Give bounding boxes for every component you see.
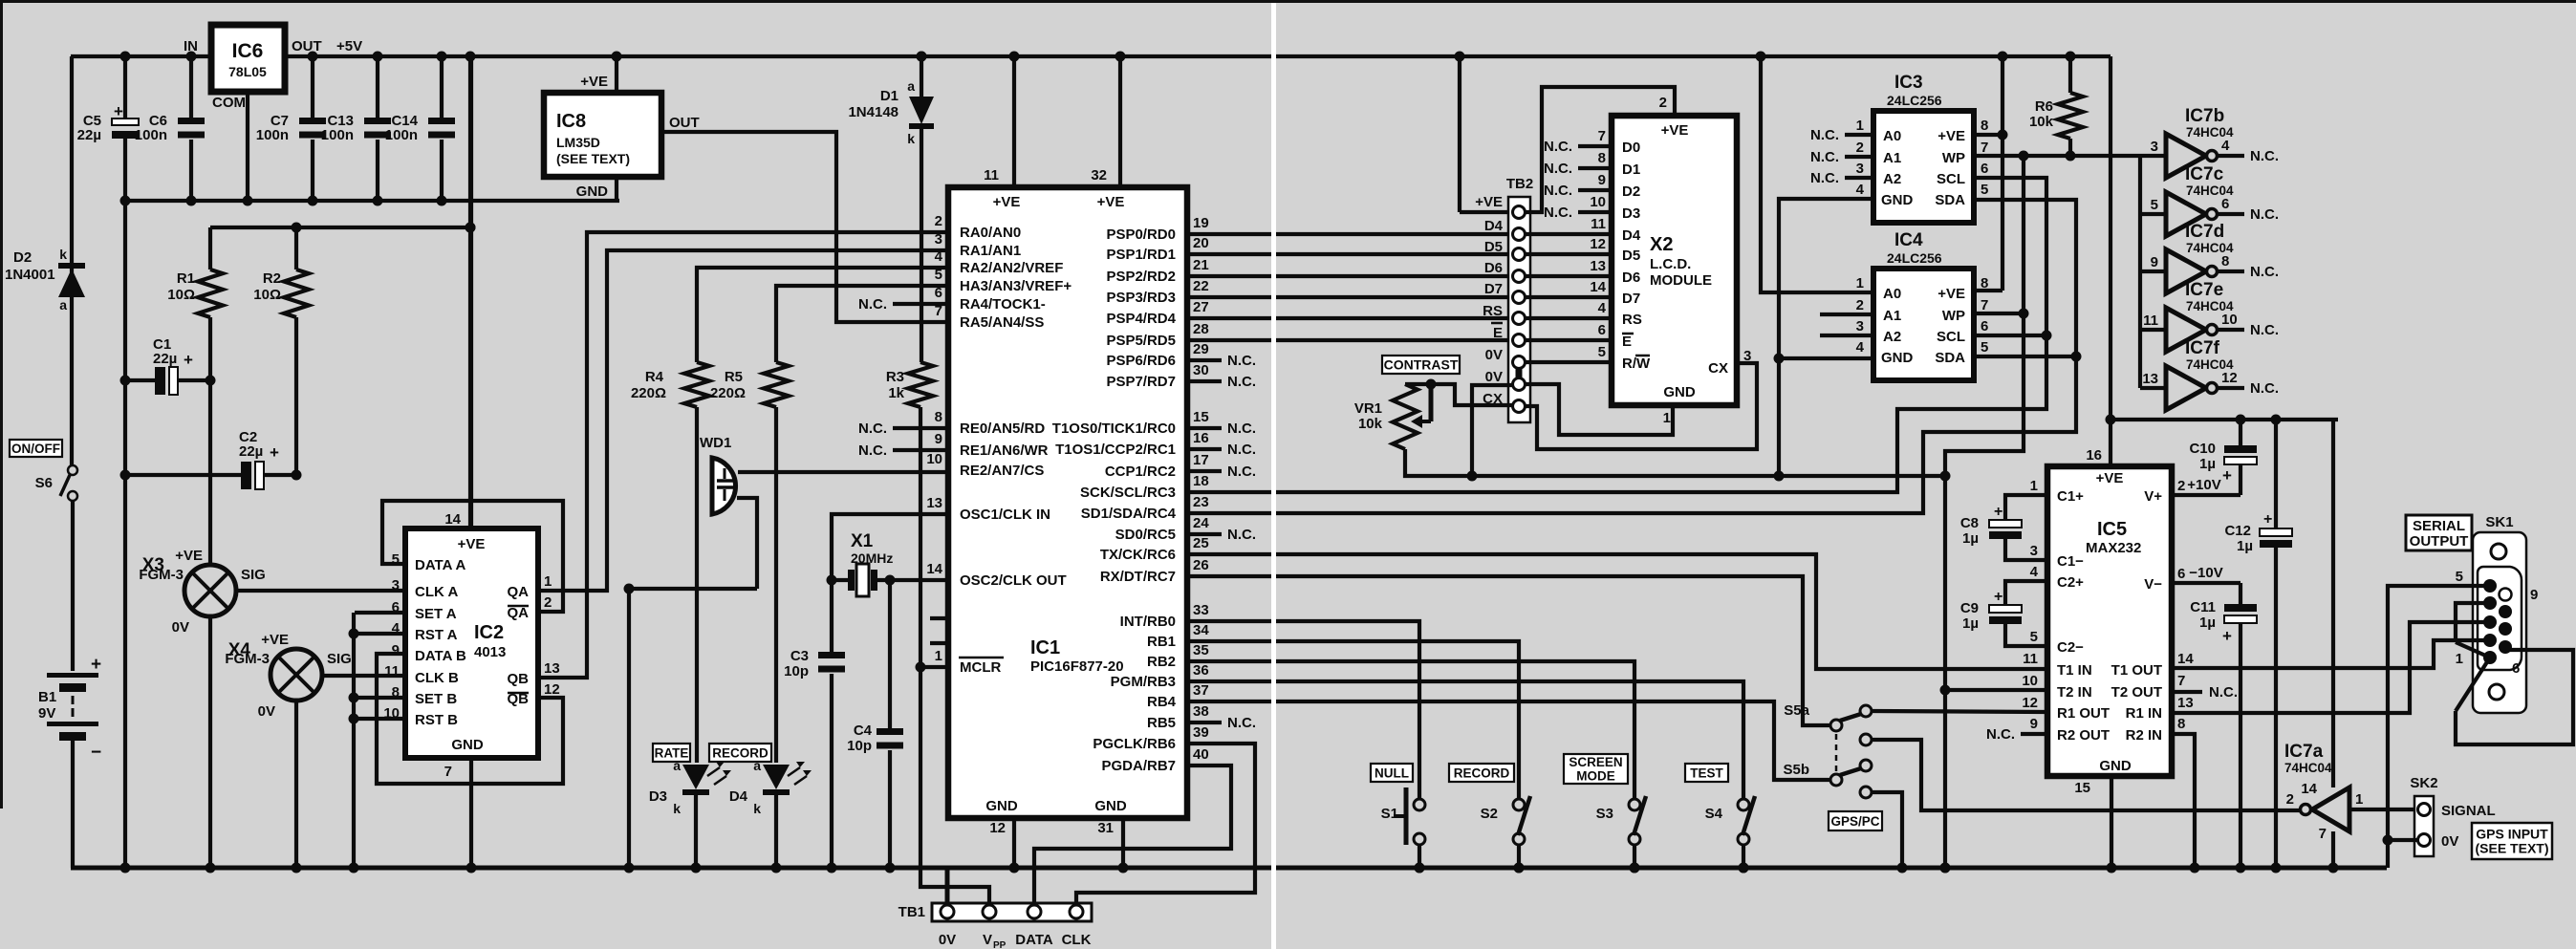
svg-text:C4: C4	[854, 723, 873, 739]
svg-text:100n: 100n	[256, 127, 289, 143]
svg-text:1k: 1k	[888, 385, 904, 401]
svg-text:INT/RB0: INT/RB0	[1120, 614, 1176, 630]
svg-text:6: 6	[2512, 660, 2520, 677]
svg-text:+VE: +VE	[993, 194, 1021, 210]
svg-text:39: 39	[1193, 724, 1209, 741]
svg-text:5: 5	[1598, 344, 1606, 360]
svg-text:20: 20	[1193, 235, 1209, 251]
svg-text:+: +	[184, 351, 193, 369]
svg-text:40: 40	[1193, 746, 1209, 763]
svg-text:RX/DT/RC7: RX/DT/RC7	[1100, 569, 1176, 585]
svg-text:IC1: IC1	[1030, 637, 1060, 658]
svg-text:A1: A1	[1883, 150, 1901, 166]
svg-text:27: 27	[1193, 299, 1209, 315]
svg-text:SD0/RC5: SD0/RC5	[1115, 527, 1176, 543]
svg-text:1µ: 1µ	[2199, 456, 2216, 472]
svg-text:IC7e: IC7e	[2185, 280, 2223, 300]
svg-text:RA1/AN1: RA1/AN1	[960, 243, 1021, 259]
svg-text:N.C.: N.C.	[1810, 149, 1839, 165]
svg-text:1µ: 1µ	[1962, 530, 1979, 547]
svg-text:A0: A0	[1883, 128, 1901, 144]
svg-text:C12: C12	[2224, 523, 2251, 539]
svg-text:N.C.: N.C.	[1544, 139, 1572, 155]
svg-text:D5: D5	[1484, 239, 1503, 255]
svg-text:2: 2	[1856, 140, 1864, 156]
svg-text:A0: A0	[1883, 286, 1901, 302]
svg-text:GND: GND	[2099, 758, 2132, 774]
svg-text:N.C.: N.C.	[2250, 206, 2279, 223]
svg-text:CX: CX	[1708, 360, 1728, 377]
svg-text:2: 2	[2286, 791, 2294, 808]
svg-text:IC7b: IC7b	[2185, 106, 2224, 126]
svg-text:QA: QA	[508, 584, 530, 600]
svg-text:B1: B1	[38, 689, 56, 705]
svg-text:R1 IN: R1 IN	[2126, 705, 2162, 722]
svg-text:+VE: +VE	[2096, 470, 2124, 486]
svg-text:9V: 9V	[38, 705, 55, 722]
svg-text:a: a	[907, 78, 915, 94]
svg-text:16: 16	[1193, 430, 1209, 446]
svg-text:36: 36	[1193, 662, 1209, 679]
svg-text:8: 8	[2221, 253, 2229, 270]
svg-text:28: 28	[1193, 321, 1209, 337]
svg-text:4: 4	[1856, 339, 1865, 356]
svg-text:N.C.: N.C.	[1227, 527, 1256, 543]
svg-text:10Ω: 10Ω	[167, 287, 195, 303]
svg-text:RA4/TOCK1-: RA4/TOCK1-	[960, 296, 1046, 313]
svg-text:SIG: SIG	[327, 651, 352, 667]
svg-text:X2: X2	[1650, 234, 1673, 255]
svg-text:D2: D2	[13, 249, 32, 266]
svg-text:10k: 10k	[1358, 416, 1383, 432]
svg-text:78L05: 78L05	[228, 64, 267, 79]
svg-text:IC7c: IC7c	[2185, 164, 2224, 184]
svg-text:−: −	[91, 743, 101, 763]
svg-text:N.C.: N.C.	[2209, 684, 2238, 701]
svg-text:OSC2/CLK OUT: OSC2/CLK OUT	[960, 572, 1067, 589]
svg-text:0V: 0V	[2441, 833, 2458, 850]
svg-text:PSP5/RD5: PSP5/RD5	[1106, 333, 1176, 349]
svg-text:2: 2	[1856, 297, 1864, 313]
svg-text:100n: 100n	[385, 127, 418, 143]
svg-text:RST A: RST A	[415, 627, 458, 643]
svg-text:N.C.: N.C.	[858, 421, 887, 437]
svg-text:T1 OUT: T1 OUT	[2111, 662, 2162, 679]
svg-text:1µ: 1µ	[1962, 615, 1979, 632]
svg-text:0V: 0V	[258, 703, 275, 720]
svg-text:N.C.: N.C.	[2250, 380, 2279, 397]
svg-text:CLK: CLK	[1062, 932, 1092, 948]
svg-text:22µ: 22µ	[77, 127, 101, 143]
svg-text:1: 1	[1856, 275, 1864, 291]
svg-text:RS: RS	[1483, 303, 1503, 319]
svg-text:220Ω: 220Ω	[710, 385, 746, 401]
svg-text:A1: A1	[1883, 308, 1901, 324]
svg-text:1N4148: 1N4148	[848, 104, 898, 120]
svg-text:N.C.: N.C.	[1227, 715, 1256, 731]
svg-text:k: k	[673, 801, 681, 816]
svg-text:C1+: C1+	[2057, 488, 2084, 505]
svg-text:+VE: +VE	[458, 536, 486, 552]
svg-text:N.C.: N.C.	[1544, 183, 1572, 199]
svg-text:34: 34	[1193, 622, 1209, 638]
svg-text:RE0/AN5/RD: RE0/AN5/RD	[960, 421, 1045, 437]
svg-text:13: 13	[926, 495, 942, 511]
svg-text:5: 5	[1981, 182, 1988, 198]
svg-text:k: k	[907, 131, 915, 146]
svg-text:74HC04: 74HC04	[2186, 357, 2234, 372]
svg-text:C8: C8	[1960, 515, 1979, 531]
svg-text:12: 12	[2221, 370, 2238, 386]
svg-text:WP: WP	[1942, 308, 1965, 324]
svg-text:24LC256: 24LC256	[1887, 93, 1942, 108]
svg-text:11: 11	[2143, 313, 2158, 329]
svg-text:IC7f: IC7f	[2185, 338, 2220, 358]
svg-text:7: 7	[1981, 297, 1988, 313]
svg-text:7: 7	[2177, 673, 2185, 689]
svg-text:SDA: SDA	[1935, 350, 1965, 366]
svg-text:+: +	[270, 443, 279, 462]
svg-text:NULL: NULL	[1375, 766, 1409, 780]
svg-text:S2: S2	[1481, 806, 1498, 822]
svg-text:FGM-3: FGM-3	[225, 651, 270, 667]
svg-text:MODULE: MODULE	[1650, 272, 1712, 289]
svg-text:11: 11	[2023, 651, 2038, 667]
svg-text:32: 32	[1091, 167, 1107, 183]
svg-text:GND: GND	[1881, 350, 1914, 366]
svg-text:PGCLK/RB6: PGCLK/RB6	[1093, 736, 1176, 752]
svg-text:TEST: TEST	[1690, 766, 1723, 780]
svg-text:QB: QB	[508, 671, 530, 687]
svg-text:T2 IN: T2 IN	[2057, 684, 2092, 701]
svg-text:+VE: +VE	[1475, 194, 1503, 210]
svg-text:0V: 0V	[1485, 369, 1503, 385]
svg-text:SK1: SK1	[2485, 514, 2513, 530]
svg-text:3: 3	[2151, 139, 2158, 155]
svg-text:OUTPUT: OUTPUT	[2410, 533, 2469, 550]
svg-text:74HC04: 74HC04	[2186, 125, 2234, 140]
svg-text:TB1: TB1	[898, 904, 925, 920]
svg-text:MODE: MODE	[1576, 769, 1615, 784]
svg-text:GND: GND	[576, 183, 609, 200]
svg-text:HA3/AN3/VREF+: HA3/AN3/VREF+	[960, 278, 1072, 294]
svg-text:+VE: +VE	[1097, 194, 1125, 210]
svg-text:PSP7/RD7: PSP7/RD7	[1106, 374, 1176, 390]
svg-text:VR1: VR1	[1354, 400, 1382, 417]
svg-text:GND: GND	[1663, 384, 1696, 400]
svg-text:PIC16F877-20: PIC16F877-20	[1030, 658, 1124, 675]
svg-text:QA: QA	[508, 605, 530, 621]
svg-text:9: 9	[2151, 254, 2158, 270]
svg-text:SCL: SCL	[1937, 171, 1965, 187]
svg-text:RA5/AN4/SS: RA5/AN4/SS	[960, 314, 1044, 331]
svg-text:D4: D4	[1484, 218, 1504, 234]
svg-text:PSP6/RD6: PSP6/RD6	[1106, 353, 1176, 369]
svg-text:14: 14	[1590, 279, 1606, 295]
svg-text:D0: D0	[1622, 140, 1640, 156]
svg-text:FGM-3: FGM-3	[139, 567, 184, 583]
svg-text:R6: R6	[2035, 98, 2053, 115]
svg-text:E: E	[1622, 334, 1632, 350]
svg-text:N.C.: N.C.	[2250, 322, 2279, 338]
svg-text:12: 12	[544, 681, 560, 698]
svg-text:OUT: OUT	[669, 115, 700, 131]
svg-text:10: 10	[2221, 312, 2238, 328]
svg-text:GND: GND	[1881, 192, 1914, 208]
svg-text:6: 6	[935, 285, 942, 301]
svg-text:OSC1/CLK IN: OSC1/CLK IN	[960, 507, 1050, 523]
svg-text:S5b: S5b	[1783, 762, 1809, 778]
svg-text:10p: 10p	[847, 738, 872, 754]
svg-text:RB1: RB1	[1147, 634, 1176, 650]
svg-text:4: 4	[2221, 138, 2230, 154]
svg-text:D5: D5	[1622, 248, 1640, 264]
svg-text:N.C.: N.C.	[858, 442, 887, 459]
svg-text:9: 9	[935, 431, 942, 447]
svg-text:3: 3	[2030, 543, 2038, 559]
svg-text:1: 1	[935, 648, 942, 664]
svg-text:N.C.: N.C.	[1986, 726, 2015, 743]
svg-text:0V: 0V	[172, 619, 189, 636]
svg-text:N.C.: N.C.	[1810, 127, 1839, 143]
svg-text:4: 4	[1856, 182, 1865, 198]
svg-text:RE1/AN6/WR: RE1/AN6/WR	[960, 442, 1049, 459]
svg-text:C9: C9	[1960, 600, 1979, 616]
svg-text:22: 22	[1193, 278, 1209, 294]
svg-text:30: 30	[1193, 362, 1209, 378]
svg-text:MAX232: MAX232	[2086, 540, 2141, 556]
svg-text:R4: R4	[645, 369, 664, 385]
svg-text:PP: PP	[993, 940, 1007, 949]
svg-text:9: 9	[1598, 172, 1606, 188]
svg-text:C11: C11	[2190, 599, 2216, 615]
svg-text:6: 6	[2177, 566, 2185, 582]
svg-text:11: 11	[384, 663, 400, 679]
svg-text:7: 7	[1598, 128, 1606, 144]
svg-text:5: 5	[2151, 197, 2158, 213]
svg-text:IC6: IC6	[232, 40, 264, 62]
svg-text:7: 7	[1981, 140, 1988, 156]
svg-text:N.C.: N.C.	[1227, 353, 1256, 369]
svg-text:22µ: 22µ	[153, 351, 177, 367]
svg-text:7: 7	[2319, 826, 2327, 842]
svg-text:IC4: IC4	[1894, 230, 1923, 250]
svg-text:SCL: SCL	[1937, 329, 1965, 345]
svg-text:10: 10	[1590, 194, 1606, 210]
svg-text:T1OS1/CCP2/RC1: T1OS1/CCP2/RC1	[1055, 442, 1176, 458]
svg-text:0V: 0V	[939, 932, 956, 948]
svg-text:SET A: SET A	[415, 606, 457, 622]
svg-text:6: 6	[2221, 196, 2229, 212]
svg-text:TX/CK/RC6: TX/CK/RC6	[1100, 547, 1176, 563]
svg-text:IC7a: IC7a	[2284, 742, 2324, 762]
svg-text:17: 17	[1193, 452, 1209, 468]
svg-text:RST B: RST B	[415, 712, 458, 728]
svg-text:k: k	[59, 247, 67, 262]
svg-text:5: 5	[935, 267, 942, 283]
svg-text:R/W: R/W	[1622, 356, 1651, 372]
svg-text:C1−: C1−	[2057, 553, 2084, 570]
svg-text:2: 2	[2177, 478, 2185, 494]
svg-text:LM35D: LM35D	[556, 135, 600, 150]
svg-text:DATA B: DATA B	[415, 648, 466, 664]
svg-text:13: 13	[544, 660, 560, 677]
svg-text:TB2: TB2	[1506, 176, 1533, 192]
svg-text:10p: 10p	[784, 663, 809, 679]
svg-text:+5V: +5V	[336, 38, 362, 54]
svg-text:IC5: IC5	[2097, 519, 2127, 540]
svg-text:3: 3	[935, 231, 942, 248]
svg-text:OUT: OUT	[292, 38, 322, 54]
svg-text:RB4: RB4	[1147, 694, 1177, 710]
svg-text:29: 29	[1193, 341, 1209, 357]
svg-text:15: 15	[2074, 780, 2090, 796]
svg-text:8: 8	[1981, 118, 1988, 134]
svg-text:N.C.: N.C.	[1544, 161, 1572, 177]
svg-text:18: 18	[1193, 473, 1209, 489]
svg-text:N.C.: N.C.	[1227, 421, 1256, 437]
svg-text:N.C.: N.C.	[1227, 442, 1256, 458]
svg-text:R3: R3	[886, 369, 904, 385]
svg-text:N.C.: N.C.	[858, 296, 887, 313]
svg-text:N.C.: N.C.	[1544, 205, 1572, 221]
svg-text:+: +	[91, 655, 101, 675]
svg-text:12: 12	[2022, 695, 2038, 711]
svg-text:RECORD: RECORD	[712, 745, 768, 760]
svg-text:+: +	[2222, 466, 2232, 485]
svg-text:RA0/AN0: RA0/AN0	[960, 225, 1021, 241]
svg-text:14: 14	[2177, 651, 2194, 667]
svg-text:R2 OUT: R2 OUT	[2057, 727, 2110, 744]
svg-text:1: 1	[2456, 651, 2463, 667]
svg-text:X1: X1	[851, 531, 874, 551]
svg-text:PGM/RB3: PGM/RB3	[1111, 674, 1176, 690]
svg-text:COM: COM	[212, 95, 246, 111]
svg-text:RATE: RATE	[655, 745, 689, 760]
svg-text:10: 10	[926, 451, 942, 467]
svg-text:D4: D4	[1622, 227, 1641, 244]
svg-text:D3: D3	[1622, 205, 1640, 222]
svg-text:3: 3	[1856, 161, 1864, 177]
svg-text:9: 9	[392, 642, 400, 658]
svg-text:D7: D7	[1622, 291, 1640, 307]
svg-text:IC2: IC2	[474, 622, 504, 643]
svg-text:GPS/PC: GPS/PC	[1830, 814, 1879, 829]
svg-text:R1: R1	[177, 270, 195, 287]
svg-text:4: 4	[2030, 564, 2039, 580]
svg-text:21: 21	[1193, 257, 1209, 273]
svg-text:R2 IN: R2 IN	[2126, 727, 2162, 744]
svg-text:9: 9	[2530, 587, 2538, 603]
svg-text:CONTRAST: CONTRAST	[1384, 357, 1459, 373]
svg-text:24LC256: 24LC256	[1887, 250, 1942, 266]
svg-text:20MHz: 20MHz	[851, 550, 893, 566]
svg-text:74HC04: 74HC04	[2284, 761, 2332, 775]
svg-text:(SEE TEXT): (SEE TEXT)	[556, 151, 630, 166]
svg-text:RE2/AN7/CS: RE2/AN7/CS	[960, 463, 1044, 479]
svg-text:1: 1	[1856, 118, 1864, 134]
svg-text:WD1: WD1	[700, 435, 731, 451]
svg-text:9: 9	[2030, 716, 2038, 732]
svg-text:10Ω: 10Ω	[253, 287, 281, 303]
svg-text:C3: C3	[790, 648, 809, 664]
svg-text:10: 10	[2022, 673, 2038, 689]
svg-text:1: 1	[2030, 478, 2038, 494]
svg-text:8: 8	[935, 409, 942, 425]
svg-text:22µ: 22µ	[239, 443, 263, 460]
svg-text:A2: A2	[1883, 329, 1901, 345]
svg-text:SIG: SIG	[241, 567, 266, 583]
svg-text:13: 13	[2177, 695, 2194, 711]
svg-text:N.C.: N.C.	[1227, 464, 1256, 480]
svg-text:1: 1	[2355, 791, 2363, 808]
svg-text:GPS INPUT: GPS INPUT	[2476, 827, 2548, 842]
svg-text:IC3: IC3	[1894, 73, 1923, 93]
svg-text:SDA: SDA	[1935, 192, 1965, 208]
svg-text:C10: C10	[2189, 441, 2216, 457]
svg-text:D4: D4	[729, 788, 748, 805]
svg-text:A2: A2	[1883, 171, 1901, 187]
svg-text:11: 11	[1591, 216, 1606, 232]
svg-text:74HC04: 74HC04	[2186, 241, 2234, 255]
svg-text:D1: D1	[1622, 162, 1640, 178]
svg-text:CLK A: CLK A	[415, 584, 458, 600]
svg-text:+: +	[114, 102, 123, 120]
svg-text:12: 12	[1590, 236, 1606, 252]
svg-text:SET B: SET B	[415, 691, 457, 707]
svg-text:6: 6	[1981, 318, 1988, 334]
svg-text:T1OS0/TICK1/RC0: T1OS0/TICK1/RC0	[1052, 421, 1176, 437]
svg-text:35: 35	[1193, 642, 1209, 658]
svg-text:SD1/SDA/RC4: SD1/SDA/RC4	[1081, 506, 1177, 522]
svg-text:37: 37	[1193, 682, 1209, 699]
svg-text:N.C.: N.C.	[2250, 264, 2279, 280]
svg-text:V−: V−	[2144, 576, 2162, 593]
svg-text:14: 14	[444, 511, 461, 528]
svg-text:RB5: RB5	[1147, 715, 1176, 731]
svg-text:13: 13	[1590, 258, 1606, 274]
svg-text:100n: 100n	[135, 127, 167, 143]
svg-text:2: 2	[935, 213, 942, 229]
svg-text:38: 38	[1193, 703, 1209, 720]
svg-text:D3: D3	[649, 788, 667, 805]
svg-text:ON/OFF: ON/OFF	[11, 442, 60, 456]
svg-text:100n: 100n	[321, 127, 354, 143]
svg-text:+VE: +VE	[261, 632, 289, 648]
svg-text:+VE: +VE	[1661, 122, 1689, 139]
svg-text:23: 23	[1193, 494, 1209, 510]
svg-text:−10V: −10V	[2189, 565, 2222, 581]
svg-text:4: 4	[935, 248, 943, 265]
svg-text:CLK B: CLK B	[415, 670, 459, 686]
svg-text:k: k	[753, 801, 761, 816]
svg-text:RS: RS	[1622, 312, 1642, 328]
svg-text:D2: D2	[1622, 183, 1640, 200]
svg-text:MCLR: MCLR	[960, 659, 1001, 676]
svg-text:PSP4/RD4: PSP4/RD4	[1106, 311, 1176, 327]
svg-text:+10V: +10V	[2187, 477, 2220, 493]
svg-text:+VE: +VE	[580, 74, 608, 90]
svg-text:PSP1/RD1: PSP1/RD1	[1106, 247, 1176, 263]
svg-text:6: 6	[1598, 322, 1606, 338]
svg-text:SIGNAL: SIGNAL	[2441, 803, 2496, 819]
svg-text:SCK/SCL/RC3: SCK/SCL/RC3	[1080, 485, 1176, 501]
svg-text:8: 8	[1598, 150, 1606, 166]
svg-text:D1: D1	[880, 88, 898, 104]
svg-text:15: 15	[1193, 409, 1209, 425]
svg-text:1N4001: 1N4001	[5, 267, 55, 283]
svg-text:CCP1/RC2: CCP1/RC2	[1105, 464, 1176, 480]
